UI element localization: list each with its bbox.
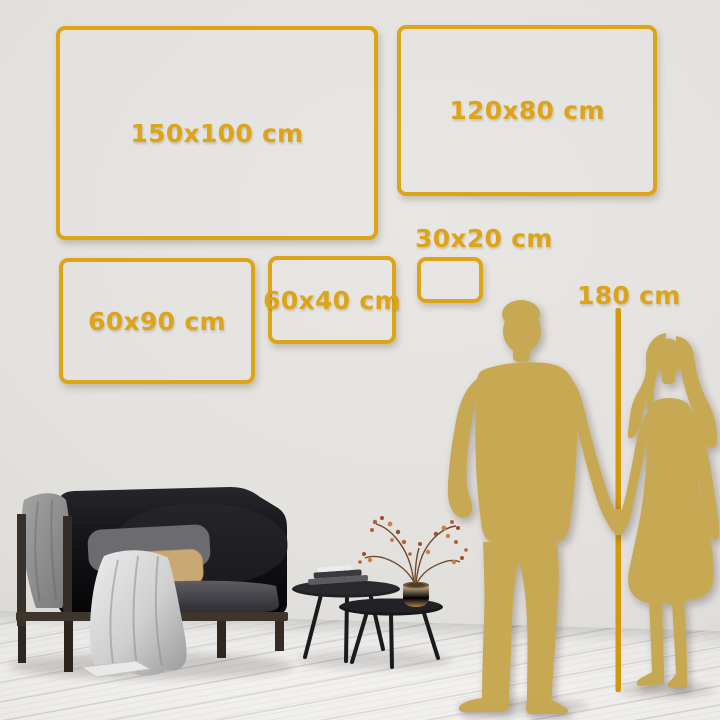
woman-back-leg [667,600,687,688]
man-silhouette [448,300,627,714]
man-torso [475,362,577,542]
sofa-leg [18,621,26,663]
sofa-leg [64,621,73,672]
sofa-post [17,514,26,626]
woman-neck [662,370,675,384]
man-left-foot [459,698,509,712]
height-marker-line [616,308,622,692]
couple-silhouette [448,300,720,714]
vase [403,585,429,607]
man-legs [482,542,559,700]
woman-silhouette [614,333,720,688]
woman-head [654,339,683,376]
size-guide-mockup: 150x100 cm 120x80 cm 60x90 cm 60x40 cm 3… [0,0,720,720]
coffee-table-large [292,581,400,662]
coffee-tables [292,516,468,667]
scene-illustration [0,0,720,720]
sofa-leg [217,616,226,658]
woman-front-leg [637,598,664,686]
sofa-post [63,516,72,620]
sofa [16,487,288,677]
man-neck [513,346,530,362]
man-left-hand [454,496,472,518]
